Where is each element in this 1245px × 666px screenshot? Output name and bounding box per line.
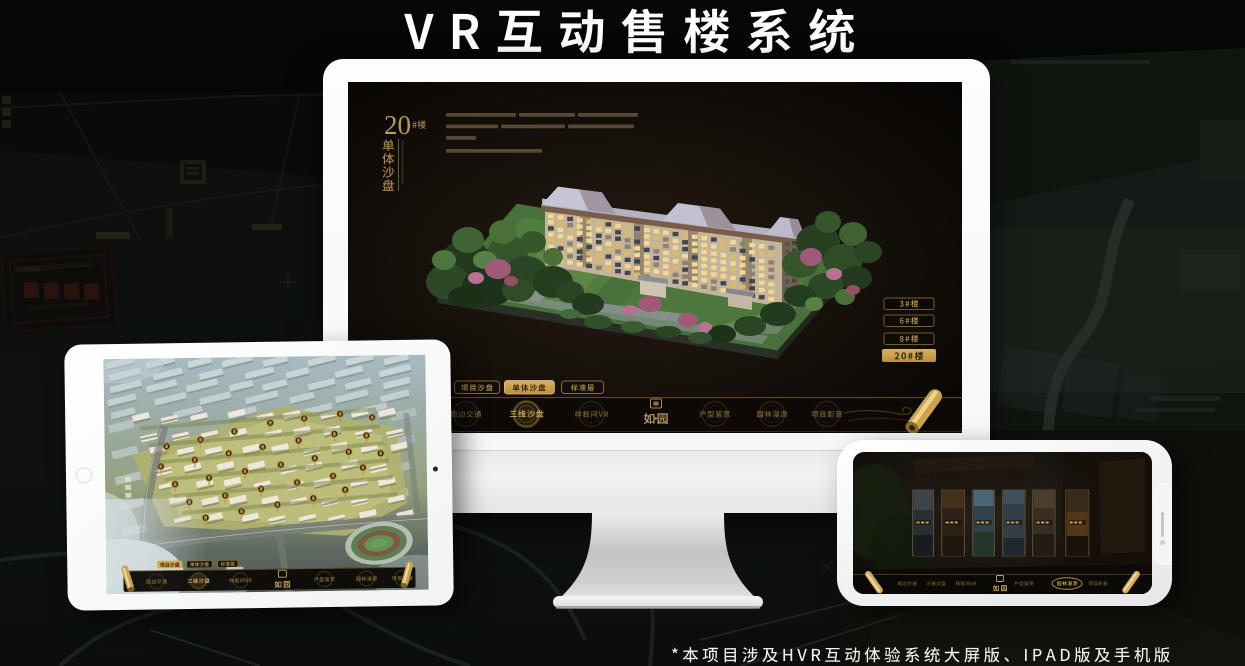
svg-text:20: 20 xyxy=(384,110,411,140)
